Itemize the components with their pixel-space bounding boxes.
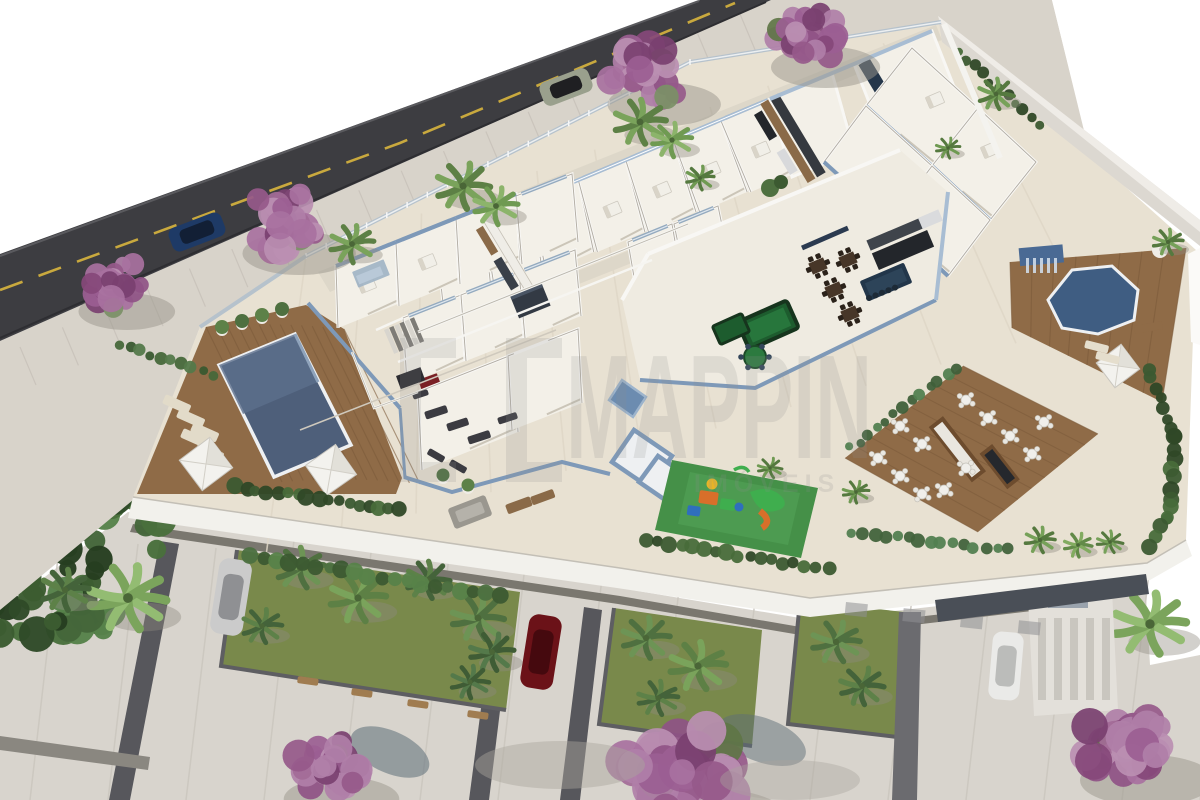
- svg-text:MAPPIN: MAPPIN: [566, 325, 872, 490]
- svg-text:IMÓVEIS: IMÓVEIS: [694, 468, 840, 498]
